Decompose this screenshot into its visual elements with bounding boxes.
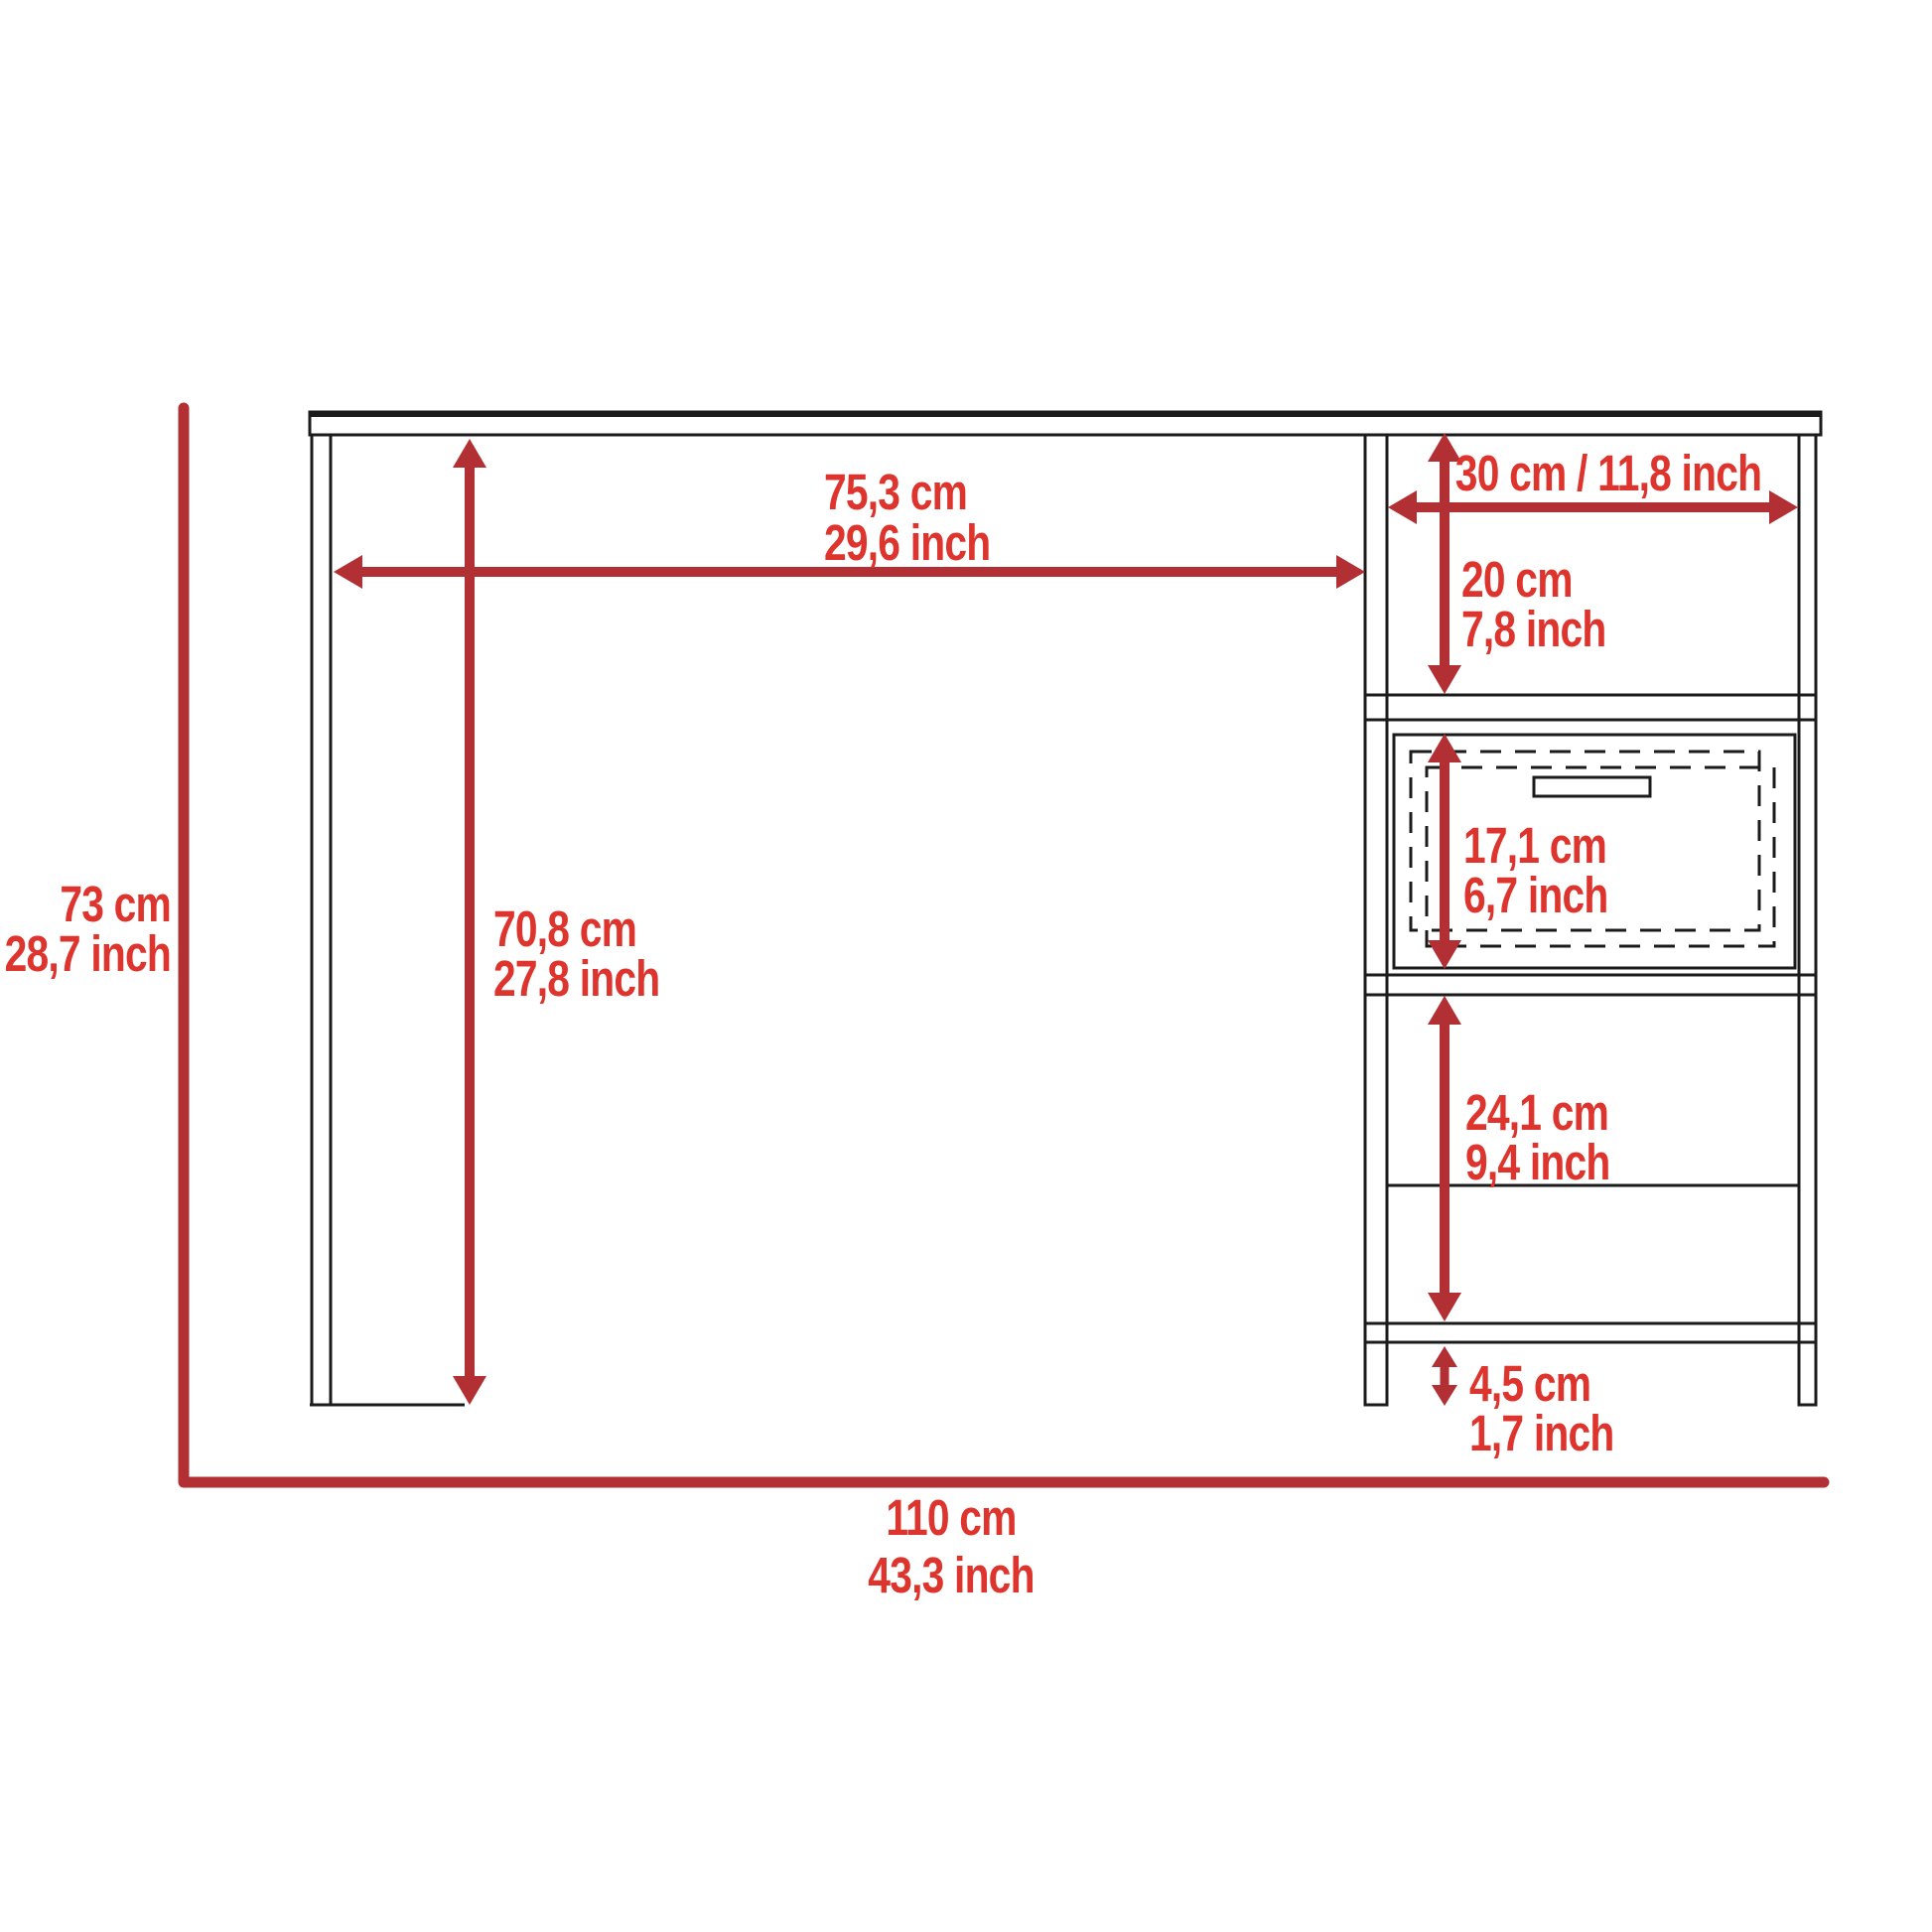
leg-height-arrow: [1432, 1346, 1457, 1406]
arrowhead-down: [453, 1376, 486, 1405]
arrowhead-up: [453, 439, 486, 468]
desk-top-width-label-cm: 75,3 cm: [824, 464, 967, 520]
shelf-section-height-label-inch: 9,4 inch: [1465, 1134, 1609, 1190]
overall-width-label-cm: 110 cm: [886, 1489, 1016, 1546]
hutch-width-label: 30 cm / 11,8 inch: [1455, 445, 1761, 501]
hutch-left-panel: [1365, 435, 1387, 1405]
arrowhead-up: [1428, 996, 1461, 1025]
clearance-height-label-inch: 27,8 inch: [493, 950, 659, 1007]
overall-width-label-inch: 43,3 inch: [868, 1547, 1034, 1603]
drawer-height-label-cm: 17,1 cm: [1463, 817, 1606, 874]
arrowhead-down: [1428, 665, 1461, 694]
arrowhead-up: [1432, 1346, 1457, 1367]
overall-height-label-cm: 73 cm: [60, 876, 171, 932]
desk-left-leg: [312, 435, 331, 1405]
shelf-section-height-label-cm: 24,1 cm: [1465, 1084, 1608, 1141]
clearance-height-arrow: [453, 439, 486, 1405]
shelf-section-height-arrow: [1428, 996, 1461, 1321]
desk-top-width-label-inch: 29,6 inch: [824, 514, 990, 571]
clearance-height-label-cm: 70,8 cm: [493, 900, 636, 957]
drawer-handle: [1534, 777, 1650, 796]
drawer-height-label-inch: 6,7 inch: [1463, 867, 1607, 923]
overall-height-label-inch: 28,7 inch: [5, 925, 171, 982]
top-cubby-height-label-inch: 7,8 inch: [1461, 601, 1605, 657]
arrowhead-right: [1336, 555, 1365, 589]
dimension-labels: 75,3 cm 29,6 inch 30 cm / 11,8 inch 20 c…: [5, 445, 1762, 1603]
arrowhead-down: [1428, 1293, 1461, 1321]
leg-height-label-inch: 1,7 inch: [1469, 1405, 1613, 1461]
dimension-diagram: 75,3 cm 29,6 inch 30 cm / 11,8 inch 20 c…: [0, 0, 1932, 1932]
arrowhead-left: [334, 555, 362, 589]
arrowhead-left: [1388, 490, 1417, 524]
hutch-right-panel: [1799, 435, 1816, 1405]
arrowhead-down: [1432, 1385, 1457, 1406]
desk-dimension-drawing: 75,3 cm 29,6 inch 30 cm / 11,8 inch 20 c…: [0, 0, 1932, 1932]
top-cubby-height-label-cm: 20 cm: [1461, 551, 1573, 608]
leg-height-label-cm: 4,5 cm: [1469, 1355, 1590, 1412]
arrowhead-right: [1769, 490, 1798, 524]
